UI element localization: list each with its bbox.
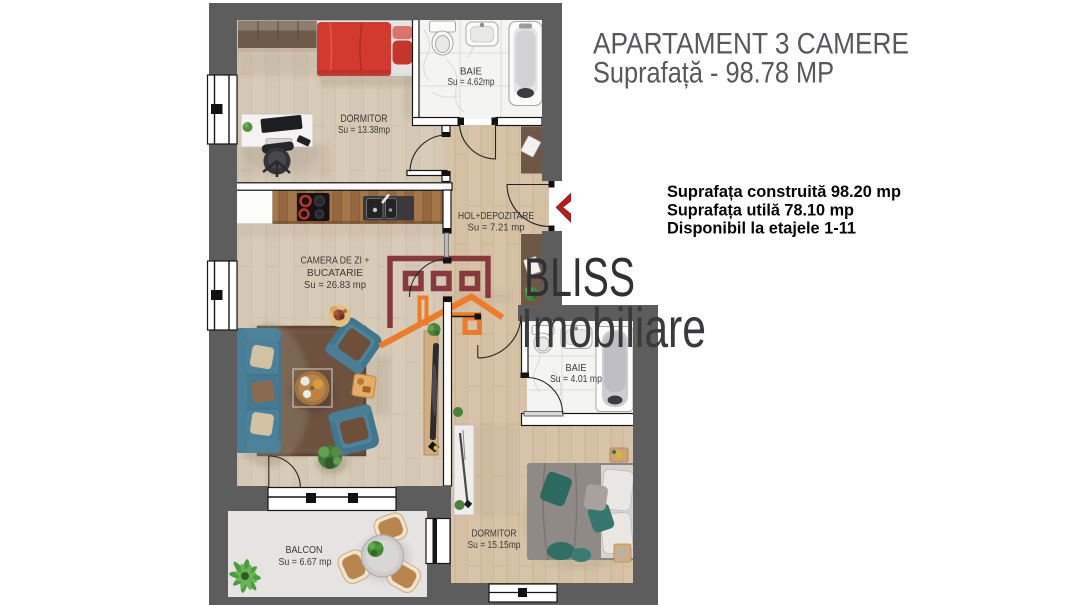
svg-text:Su = 6.67 mp: Su = 6.67 mp — [279, 557, 332, 568]
svg-text:Su = 4.62mp: Su = 4.62mp — [448, 77, 495, 88]
svg-text:Su = 7.21 mp: Su = 7.21 mp — [468, 223, 525, 234]
svg-text:Suprafață - 98.78 MP: Suprafață - 98.78 MP — [593, 57, 834, 90]
svg-text:Su = 13.38mp: Su = 13.38mp — [338, 125, 390, 136]
svg-text:BUCATARIE: BUCATARIE — [307, 267, 363, 279]
svg-text:Suprafața construită 98.20 mp: Suprafața construită 98.20 mp — [667, 182, 901, 201]
svg-text:BAIE: BAIE — [566, 362, 587, 374]
svg-text:DORMITOR: DORMITOR — [472, 528, 517, 540]
svg-text:BAIE: BAIE — [460, 66, 482, 78]
svg-text:Suprafața utilă 78.10 mp: Suprafața utilă 78.10 mp — [667, 201, 854, 220]
svg-text:DORMITOR: DORMITOR — [341, 113, 388, 125]
svg-text:Su = 15.15mp: Su = 15.15mp — [468, 540, 521, 551]
svg-text:Su = 4.01 mp: Su = 4.01 mp — [550, 374, 602, 385]
svg-text:BALCON: BALCON — [286, 544, 323, 556]
svg-text:Su = 26.83 mp: Su = 26.83 mp — [304, 280, 366, 291]
svg-text:Imobiliare: Imobiliare — [521, 296, 706, 359]
svg-text:Disponibil la etajele 1-11: Disponibil la etajele 1-11 — [667, 219, 856, 238]
svg-text:HOL+DEPOZITARE: HOL+DEPOZITARE — [458, 210, 534, 222]
svg-text:CAMERA DE ZI +: CAMERA DE ZI + — [301, 255, 370, 267]
